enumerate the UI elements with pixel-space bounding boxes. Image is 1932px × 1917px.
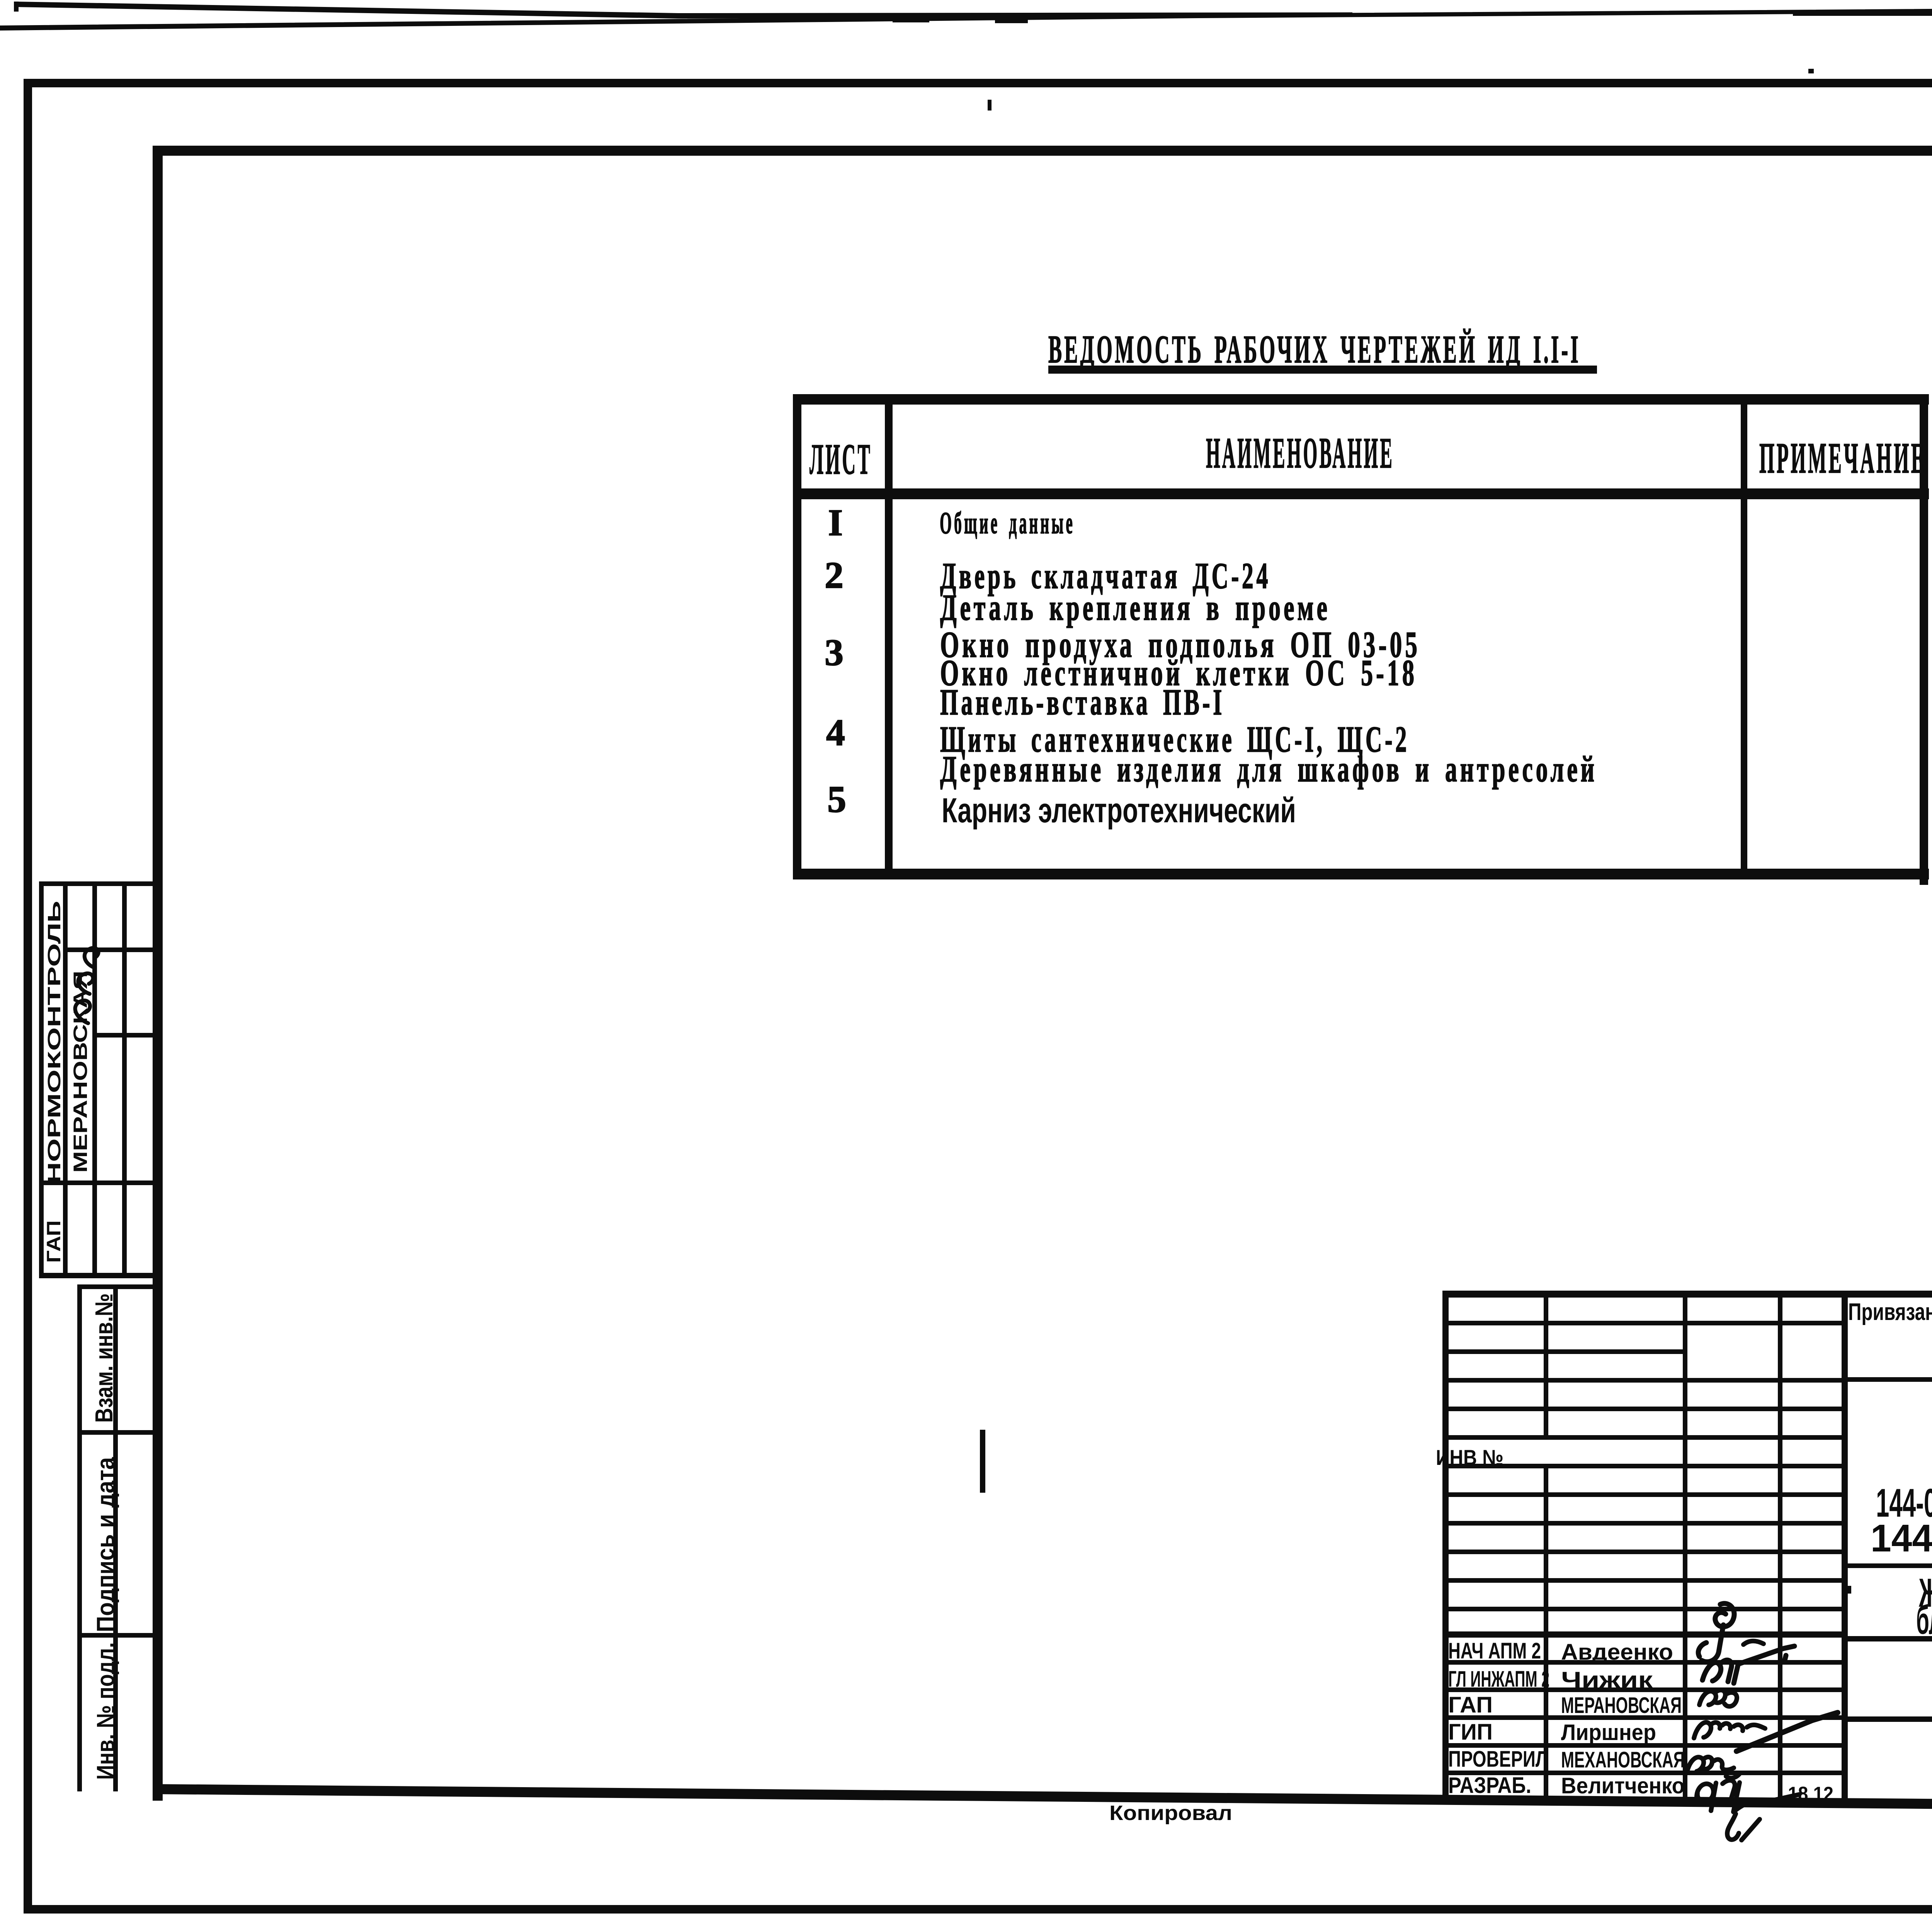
svg-text:НАЧ АПМ 2: НАЧ АПМ 2 xyxy=(1448,1638,1541,1664)
svg-text:I: I xyxy=(828,502,847,544)
svg-text:ГАП: ГАП xyxy=(1448,1692,1493,1718)
svg-text:Деталь крепления в проеме: Деталь крепления в проеме xyxy=(940,587,1330,628)
svg-text:Панель-вставка ПВ-I: Панель-вставка ПВ-I xyxy=(940,682,1225,723)
svg-text:Копировал: Копировал xyxy=(1109,1801,1232,1825)
svg-text:Взам. инв.№: Взам. инв.№ xyxy=(90,1293,118,1423)
svg-text:НАИМЕНОВАНИЕ: НАИМЕНОВАНИЕ xyxy=(1206,429,1394,477)
svg-text:2: 2 xyxy=(825,555,848,596)
svg-text:Подпись и дата: Подпись и дата xyxy=(92,1457,119,1632)
svg-text:144-022.13.87: 144-022.13.87 xyxy=(1871,1517,1932,1560)
svg-text:блоков ячеистого бетона: блоков ячеистого бетона xyxy=(1916,1597,1932,1643)
svg-text:ПРОВЕРИЛ: ПРОВЕРИЛ xyxy=(1448,1747,1548,1772)
svg-text:Карниз электротехнический: Карниз электротехнический xyxy=(942,791,1296,830)
svg-text:РАЗРАБ.: РАЗРАБ. xyxy=(1448,1773,1531,1798)
svg-text:4: 4 xyxy=(826,712,850,754)
svg-text:МЕРАНОВСКАЯ: МЕРАНОВСКАЯ xyxy=(1561,1693,1682,1718)
svg-text:МЕХАНОВСКАЯ: МЕХАНОВСКАЯ xyxy=(1561,1747,1685,1772)
svg-text:ЛИСТ: ЛИСТ xyxy=(810,435,872,483)
svg-text:Велитченко: Велитченко xyxy=(1561,1773,1685,1798)
svg-text:Общие данные: Общие данные xyxy=(940,506,1075,540)
svg-text:3: 3 xyxy=(825,632,848,674)
svg-text:ИНВ №: ИНВ № xyxy=(1436,1445,1503,1470)
svg-text:ПРИМЕЧАНИЕ: ПРИМЕЧАНИЕ xyxy=(1759,434,1926,482)
svg-text:Лиршнер: Лиршнер xyxy=(1561,1720,1656,1745)
svg-text:Чижик: Чижик xyxy=(1561,1667,1653,1692)
svg-text:Инв. № подл.: Инв. № подл. xyxy=(92,1642,119,1780)
svg-text:ВЕДОМОСТЬ РАБОЧИХ ЧЕРТЕЖЕЙ ИД: ВЕДОМОСТЬ РАБОЧИХ ЧЕРТЕЖЕЙ ИД I.I-I xyxy=(1048,328,1581,371)
svg-text:5: 5 xyxy=(827,779,851,820)
svg-text:Авдеенко: Авдеенко xyxy=(1561,1640,1673,1665)
svg-text:Деревянные изделия для шкафов: Деревянные изделия для шкафов и антресол… xyxy=(940,748,1597,789)
svg-text:Привязан: Привязан xyxy=(1848,1299,1932,1325)
svg-text:ГАП: ГАП xyxy=(43,1220,65,1263)
svg-text:ГЛ ИНЖАПМ 2: ГЛ ИНЖАПМ 2 xyxy=(1448,1667,1549,1692)
svg-text:НОРМОКОНТРОЛЬ: НОРМОКОНТРОЛЬ xyxy=(44,901,64,1184)
svg-text:ГИП: ГИП xyxy=(1448,1720,1493,1745)
